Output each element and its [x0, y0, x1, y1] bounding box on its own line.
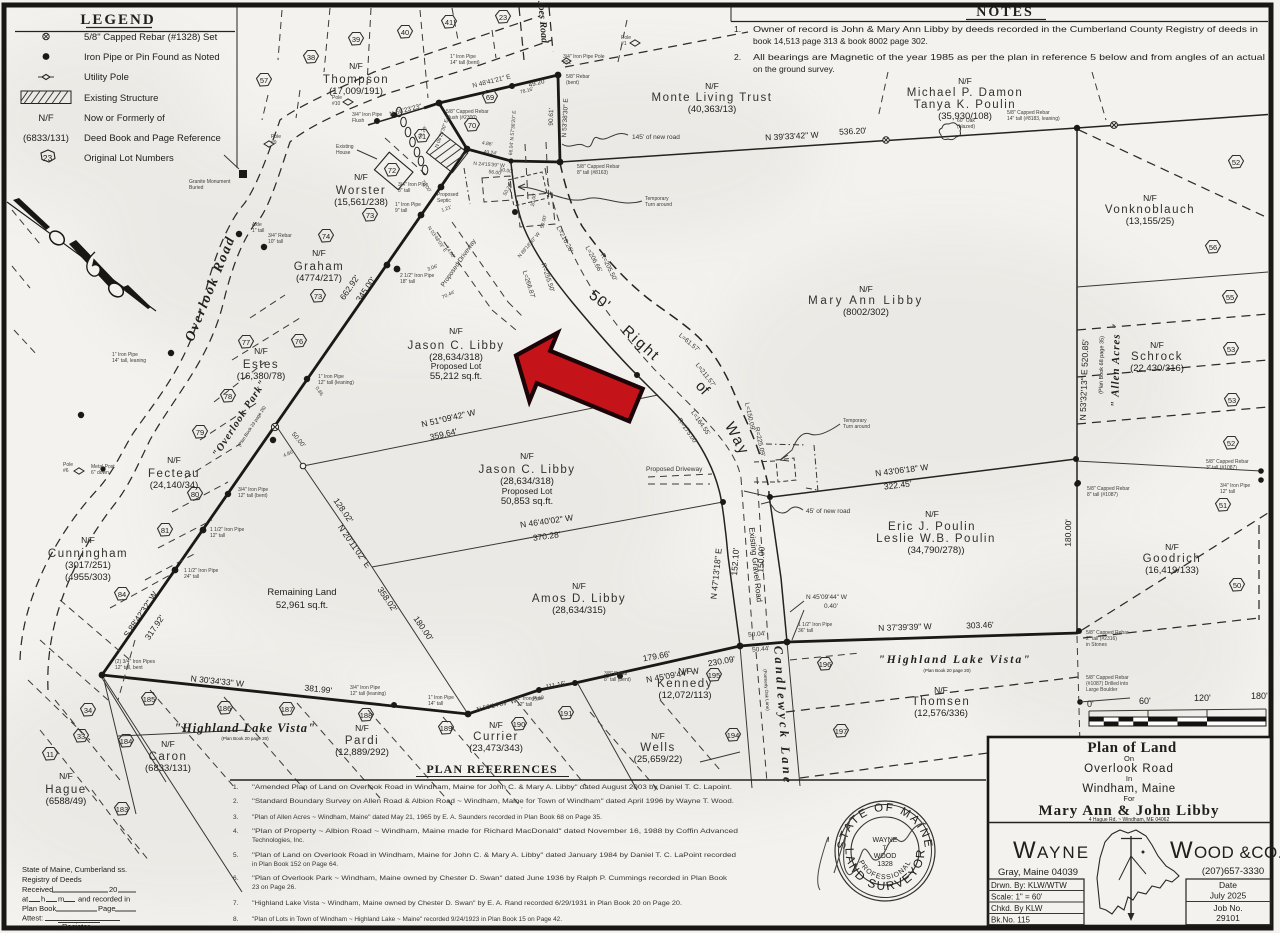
svg-text:Schrock: Schrock [1131, 351, 1183, 363]
svg-text:3.: 3. [233, 814, 239, 821]
svg-text:8" tall (#8163): 8" tall (#8163) [577, 170, 608, 176]
svg-text:3" tall (#1087): 3" tall (#1087) [1206, 465, 1237, 471]
svg-text:14" tall (#8183, leaning): 14" tall (#8183, leaning) [1007, 116, 1060, 122]
svg-text:N/F: N/F [925, 509, 939, 519]
svg-text:50,853 sq.ft.: 50,853 sq.ft. [501, 496, 553, 507]
svg-text:(13,155/25): (13,155/25) [1126, 216, 1175, 227]
svg-text:(6833/131): (6833/131) [145, 763, 191, 774]
svg-text:57: 57 [260, 76, 268, 85]
svg-text:29101: 29101 [1216, 913, 1240, 923]
svg-text:in Stones: in Stones [1086, 642, 1107, 648]
svg-text:4.: 4. [233, 828, 239, 835]
svg-text:LEGEND: LEGEND [80, 12, 155, 28]
svg-text:(bent): (bent) [566, 80, 579, 86]
svg-text:186: 186 [219, 704, 232, 713]
svg-text:185: 185 [143, 695, 156, 704]
svg-text:Thompson: Thompson [323, 74, 389, 86]
svg-text:#6: #6 [63, 468, 69, 474]
svg-text:Septic: Septic [437, 198, 451, 204]
svg-text:N/F: N/F [958, 76, 972, 86]
svg-text:#10: #10 [332, 101, 341, 107]
svg-text:Hague: Hague [45, 784, 86, 796]
svg-text:(23,473/343): (23,473/343) [469, 743, 523, 754]
svg-text:Now or Formerly of: Now or Formerly of [84, 113, 165, 124]
svg-text:52,961 sq.ft.: 52,961 sq.ft. [276, 600, 328, 611]
svg-text:53: 53 [1227, 345, 1235, 354]
svg-text:(22,430/316): (22,430/316) [1130, 363, 1184, 374]
svg-text:In: In [1126, 774, 1132, 783]
svg-text:(6833/131): (6833/131) [23, 133, 69, 144]
svg-text:Register: Register [62, 922, 90, 931]
svg-text:(25,659/22): (25,659/22) [634, 754, 683, 765]
svg-text:79: 79 [196, 428, 204, 437]
svg-text:(6588/49): (6588/49) [46, 796, 87, 807]
svg-text:(28,634/315): (28,634/315) [552, 605, 606, 616]
svg-text:(4955/303): (4955/303) [65, 572, 111, 583]
svg-text:23: 23 [499, 13, 507, 22]
svg-text:(12,889/292): (12,889/292) [335, 747, 389, 758]
svg-text:July 2025: July 2025 [1210, 891, 1247, 901]
svg-text:N/F: N/F [572, 581, 586, 591]
svg-text:N/F: N/F [520, 451, 534, 461]
svg-text:N/F: N/F [859, 284, 873, 294]
svg-text:52: 52 [1227, 439, 1235, 448]
svg-text:12" tall: 12" tall [1220, 489, 1235, 495]
svg-text:Original Lot Numbers: Original Lot Numbers [84, 153, 174, 164]
svg-text:5.: 5. [233, 852, 239, 859]
svg-text:73: 73 [366, 211, 374, 220]
svg-text:Caron: Caron [149, 751, 188, 763]
svg-text:(Plan Book 68 page 35): (Plan Book 68 page 35) [1098, 336, 1105, 394]
svg-text:Bk.No. 115: Bk.No. 115 [991, 916, 1031, 925]
svg-text:N/F: N/F [449, 326, 463, 336]
svg-text:3" tall: 3" tall [398, 188, 410, 194]
svg-text:12" tall, bent: 12" tall, bent [115, 665, 143, 671]
svg-text:5/8" Capped Rebar (#1328) Set: 5/8" Capped Rebar (#1328) Set [84, 32, 218, 43]
svg-text:303.46': 303.46' [966, 620, 994, 631]
svg-text:All bearings are Magnetic of t: All bearings are Magnetic of the year 19… [753, 52, 1265, 62]
svg-text:14" tall, leaning: 14" tall, leaning [112, 358, 146, 364]
svg-text:(15,561/238): (15,561/238) [334, 197, 388, 208]
svg-text:(16,419/133): (16,419/133) [1145, 565, 1199, 576]
svg-text:Wells: Wells [640, 742, 675, 754]
svg-text:1.: 1. [734, 24, 741, 34]
svg-text:2.: 2. [734, 52, 741, 62]
svg-text:Tanya K. Poulin: Tanya K. Poulin [914, 99, 1016, 111]
svg-text:189: 189 [440, 724, 453, 733]
svg-text:8.: 8. [233, 916, 239, 923]
svg-text:"Highland Lake Vista ~ Windham: "Highland Lake Vista ~ Windham, Maine ow… [252, 900, 682, 907]
svg-text:at: at [22, 895, 29, 904]
svg-text:Buried: Buried [189, 185, 204, 191]
svg-text:Michael P. Damon: Michael P. Damon [907, 87, 1023, 99]
svg-text:N/F: N/F [161, 739, 175, 749]
svg-text:"Plan of Overlook Park ~ Windh: "Plan of Overlook Park ~ Windham, Maine … [252, 875, 728, 882]
svg-text:76: 76 [295, 337, 303, 346]
svg-text:12" tall (leaning): 12" tall (leaning) [318, 380, 354, 386]
svg-text:For: For [1123, 794, 1135, 803]
svg-text:56: 56 [1209, 243, 1217, 252]
svg-text:70: 70 [468, 121, 476, 130]
svg-text:Goodrich: Goodrich [1143, 553, 1202, 565]
svg-text:Plan Book: Plan Book [22, 904, 56, 913]
svg-text:N/F: N/F [651, 731, 665, 741]
svg-text:12" tall: 12" tall [210, 533, 225, 539]
svg-text:0': 0' [1087, 699, 1094, 709]
svg-text:"Highland Lake Vista": "Highland Lake Vista" [878, 654, 1031, 666]
svg-text:(12,072/113): (12,072/113) [658, 690, 711, 701]
svg-text:Jason C. Libby: Jason C. Libby [407, 340, 504, 352]
svg-text:Attest:: Attest: [22, 914, 43, 923]
svg-text:On: On [1124, 754, 1134, 763]
svg-text:(40,363/13): (40,363/13) [688, 104, 737, 115]
svg-text:N/F: N/F [167, 455, 181, 465]
svg-text:Page: Page [98, 904, 116, 913]
svg-text:23 on Page 26.: 23 on Page 26. [252, 884, 296, 891]
svg-text:14" tall: 14" tall [428, 701, 443, 707]
svg-text:180': 180' [1251, 691, 1268, 701]
svg-text:m: m [58, 895, 64, 904]
svg-text:Estes: Estes [243, 359, 279, 371]
svg-text:194: 194 [727, 731, 740, 740]
svg-text:in Plan Book 152 on Page 64.: in Plan Book 152 on Page 64. [252, 861, 338, 868]
svg-text:Proposed Lot: Proposed Lot [431, 361, 482, 371]
svg-text:51: 51 [1219, 501, 1227, 510]
svg-text:1328: 1328 [877, 861, 893, 868]
svg-text:Turn around: Turn around [645, 202, 672, 208]
svg-text:N/F: N/F [1165, 542, 1179, 552]
svg-text:45' of new road: 45' of new road [806, 508, 851, 515]
svg-text:Chkd. By KLW: Chkd. By KLW [991, 904, 1043, 913]
svg-text:183: 183 [116, 805, 129, 814]
svg-text:Graham: Graham [294, 261, 345, 273]
svg-text:196: 196 [819, 660, 832, 669]
svg-text:(3017/251): (3017/251) [65, 560, 111, 571]
svg-text:Registry of Deeds: Registry of Deeds [22, 875, 82, 884]
svg-text:53: 53 [1228, 396, 1236, 405]
svg-text:AYNE: AYNE [1037, 843, 1090, 862]
svg-text:8" tall (bent): 8" tall (bent) [604, 677, 631, 683]
svg-text:OOD &CO.: OOD &CO. [1194, 843, 1280, 862]
svg-text:12" tall: 12" tall [517, 702, 532, 708]
svg-text:73: 73 [314, 292, 322, 301]
svg-text:41: 41 [445, 18, 453, 27]
svg-text:4 Hague Rd. ~ Windham, ME 0: 4 Hague Rd. ~ Windham, ME 04062 [1089, 817, 1170, 823]
svg-text:39: 39 [352, 35, 360, 44]
svg-text:PLAN REFERENCES: PLAN REFERENCES [426, 762, 557, 776]
svg-text:Drwn. By: KLW/WTW: Drwn. By: KLW/WTW [991, 881, 1067, 890]
svg-text:12" tall (bent): 12" tall (bent) [238, 493, 268, 499]
svg-text:Iron Pipe or Pin Found as Note: Iron Pipe or Pin Found as Noted [84, 52, 220, 63]
svg-text:24" tall: 24" tall [184, 574, 199, 580]
svg-text:N/F: N/F [705, 81, 719, 91]
svg-text:"Plan of Allen Acres ~ Windham: "Plan of Allen Acres ~ Windham, Maine" d… [252, 814, 602, 821]
svg-text:536.20': 536.20' [839, 125, 867, 136]
svg-text:N/F: N/F [349, 61, 363, 71]
svg-text:34: 34 [84, 706, 92, 715]
svg-text:Utility Pole: Utility Pole [84, 72, 129, 83]
svg-text:"Highland Lake Vista": "Highland Lake Vista" [174, 721, 316, 735]
svg-text:78: 78 [224, 392, 232, 401]
svg-text:Cunningham: Cunningham [48, 548, 128, 560]
svg-text:188: 188 [360, 711, 373, 720]
svg-text:N/F: N/F [355, 723, 369, 733]
svg-text:120': 120' [1194, 693, 1211, 703]
svg-text:Worster: Worster [336, 185, 387, 197]
svg-text:Large Boulder: Large Boulder [1086, 687, 1118, 693]
svg-text:50: 50 [1233, 581, 1241, 590]
svg-text:Flush (#2300): Flush (#2300) [446, 115, 477, 121]
svg-text:195: 195 [708, 671, 721, 680]
svg-text:81: 81 [161, 526, 169, 535]
svg-text:Received: Received [22, 885, 53, 894]
svg-text:6" down: 6" down [91, 470, 109, 476]
svg-text:(34,790/278)): (34,790/278)) [907, 545, 964, 556]
svg-text:190: 190 [513, 720, 526, 729]
svg-text:Job No.: Job No. [1213, 903, 1242, 913]
svg-text:52: 52 [1232, 158, 1240, 167]
svg-text:Jason C. Libby: Jason C. Libby [478, 464, 575, 476]
svg-text:20: 20 [109, 885, 117, 894]
svg-text:11: 11 [46, 750, 54, 759]
svg-text:Amos D. Libby: Amos D. Libby [532, 593, 626, 605]
svg-text:Flush: Flush [352, 118, 364, 124]
svg-text:N/F: N/F [312, 248, 326, 258]
svg-text:N/F: N/F [934, 685, 948, 695]
svg-text:Monte Living Trust: Monte Living Trust [652, 92, 773, 104]
svg-text:84: 84 [118, 590, 126, 599]
svg-text:Eric J. Poulin: Eric J. Poulin [888, 521, 976, 533]
svg-text:(12,576/336): (12,576/336) [914, 708, 968, 719]
svg-text:(Plan Book 20 page 20): (Plan Book 20 page 20) [923, 668, 971, 673]
svg-text:77: 77 [242, 338, 250, 347]
svg-text:N/F: N/F [254, 346, 268, 356]
svg-text:N/F: N/F [59, 771, 73, 781]
svg-text:150.00': 150.00' [755, 544, 766, 572]
svg-text:#9: #9 [271, 140, 277, 146]
svg-text:1.: 1. [233, 784, 239, 791]
svg-text:Proposed Driveway: Proposed Driveway [646, 466, 703, 473]
svg-text:Owner of record is John & Mary: Owner of record is John & Mary Ann Libby… [753, 24, 1258, 34]
svg-text:8" tall (#1087): 8" tall (#1087) [1087, 492, 1118, 498]
svg-text:Gray, Maine 04039: Gray, Maine 04039 [998, 867, 1078, 878]
svg-text:"Plan of Lots in Town of Windh: "Plan of Lots in Town of Windham ~ Highl… [252, 916, 562, 923]
svg-text:145' of new road: 145' of new road [632, 134, 680, 141]
svg-text:10" tall: 10" tall [268, 239, 283, 245]
svg-text:on the ground survey.: on the ground survey. [753, 64, 835, 74]
svg-text:55,212 sq.ft.: 55,212 sq.ft. [430, 371, 482, 382]
svg-text:197: 197 [835, 727, 848, 736]
svg-text:State of Maine, Cumberland ss.: State of Maine, Cumberland ss. [22, 865, 127, 874]
svg-text:"Plan of Land on Overlook Road: "Plan of Land on Overlook Road in Windha… [252, 852, 736, 859]
svg-text:N/F: N/F [38, 113, 54, 124]
svg-text:80: 80 [191, 490, 199, 499]
svg-text:60': 60' [1139, 696, 1151, 706]
svg-text:N/F: N/F [489, 720, 503, 730]
svg-text:40: 40 [401, 28, 409, 37]
svg-text:Proposed Lot: Proposed Lot [502, 486, 553, 496]
svg-text:N/F: N/F [81, 535, 95, 545]
svg-text:W: W [1013, 837, 1037, 864]
svg-text:180.00': 180.00' [1063, 519, 1073, 547]
svg-text:Date: Date [1219, 880, 1237, 890]
svg-text:191: 191 [560, 709, 573, 718]
svg-text:House: House [336, 150, 351, 156]
svg-text:N/F: N/F [1150, 340, 1164, 350]
svg-text:90.61': 90.61' [548, 108, 556, 126]
svg-text:"Plan of Property ~ Albion Roa: "Plan of Property ~ Albion Road ~ Windha… [252, 828, 738, 835]
svg-text:Pardi: Pardi [345, 735, 379, 747]
svg-text:Turn around: Turn around [843, 424, 870, 430]
svg-text:Mary Ann Libby: Mary Ann Libby [808, 295, 924, 307]
svg-text:69: 69 [486, 93, 494, 102]
svg-text:(207)657-3330: (207)657-3330 [1202, 866, 1264, 877]
svg-text:Scale: 1" = 60': Scale: 1" = 60' [991, 893, 1043, 902]
svg-text:Technologies, Inc.: Technologies, Inc. [252, 837, 304, 844]
svg-text:23: 23 [43, 153, 53, 163]
svg-text:(8002/302): (8002/302) [843, 307, 889, 318]
svg-text:#52: #52 [563, 60, 572, 66]
svg-text:55: 55 [1226, 293, 1234, 302]
svg-text:Existing Structure: Existing Structure [84, 93, 158, 104]
svg-text:Leslie W.B. Poulin: Leslie W.B. Poulin [876, 533, 996, 545]
svg-text:"Amended Plan of Land on Overl: "Amended Plan of Land on Overlook Road i… [252, 784, 732, 791]
svg-text:(Plan Book 20 page 20): (Plan Book 20 page 20) [221, 736, 269, 741]
svg-text:N 45'09'44" W: N 45'09'44" W [806, 594, 848, 601]
svg-text:Thomsen: Thomsen [912, 696, 970, 708]
svg-text:9" tall: 9" tall [395, 208, 407, 214]
svg-text:1" tall: 1" tall [252, 228, 264, 234]
svg-text:6.: 6. [233, 875, 239, 882]
svg-text:14" tall (bent): 14" tall (bent) [450, 60, 480, 66]
svg-text:74: 74 [322, 232, 330, 241]
svg-text:152.10': 152.10' [729, 547, 741, 576]
svg-text:and recorded in: and recorded in [78, 895, 130, 904]
svg-text:book 14,513 page 313 & book 80: book 14,513 page 313 & book 8002 page 30… [753, 36, 928, 46]
svg-text:Fecteau: Fecteau [148, 468, 200, 480]
svg-text:187: 187 [281, 705, 294, 714]
svg-text:(4774/217): (4774/217) [296, 273, 342, 284]
svg-text:N/F: N/F [1143, 193, 1157, 203]
svg-text:Vonknoblauch: Vonknoblauch [1105, 204, 1195, 216]
svg-text:33: 33 [77, 732, 85, 741]
svg-text:#1: #1 [621, 41, 627, 47]
svg-text:"Standard Boundary Survey on A: "Standard Boundary Survey on Allen Road … [252, 798, 734, 805]
svg-text:Deed Book and Page Reference: Deed Book and Page Reference [84, 133, 221, 144]
svg-text:72: 72 [388, 166, 396, 175]
svg-text:36" tall: 36" tall [798, 628, 813, 634]
svg-text:7.: 7. [233, 900, 239, 907]
svg-text:Remaining Land: Remaining Land [267, 587, 336, 598]
svg-text:h: h [41, 895, 45, 904]
svg-text:" Allen Acres ": " Allen Acres " [1109, 322, 1122, 407]
svg-text:18" tall: 18" tall [400, 279, 415, 285]
svg-text:38: 38 [307, 53, 315, 62]
svg-text:0.40': 0.40' [824, 603, 838, 610]
svg-text:12" tall (leaning): 12" tall (leaning) [350, 691, 386, 697]
svg-text:Currier: Currier [473, 731, 519, 743]
svg-text:184: 184 [120, 737, 133, 746]
svg-text:N 37'39'39" W: N 37'39'39" W [878, 621, 932, 633]
svg-text:W: W [1170, 837, 1193, 864]
svg-text:NOTES: NOTES [976, 5, 1033, 20]
svg-text:N/F: N/F [354, 172, 368, 182]
svg-text:WOOD: WOOD [874, 853, 897, 860]
svg-text:2.: 2. [233, 798, 239, 805]
